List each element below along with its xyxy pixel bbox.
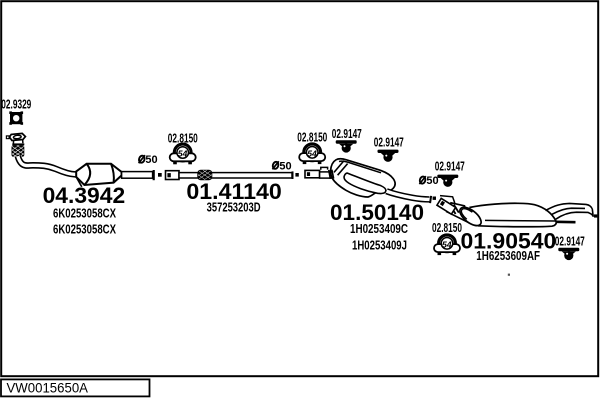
svg-text:6K0253058CX: 6K0253058CX (53, 205, 116, 220)
svg-text:02.9147: 02.9147 (332, 126, 362, 141)
svg-text:54: 54 (307, 149, 317, 159)
svg-text:50: 50 (145, 154, 157, 166)
svg-text:357253203D: 357253203D (207, 199, 261, 214)
svg-text:54: 54 (178, 149, 188, 159)
svg-text:54: 54 (442, 240, 452, 250)
svg-text:02.9329: 02.9329 (1, 97, 31, 112)
svg-text:1H0253409C: 1H0253409C (350, 221, 408, 236)
svg-text:02.9147: 02.9147 (435, 159, 465, 174)
svg-text:50: 50 (279, 160, 291, 172)
svg-text:02.8150: 02.8150 (432, 220, 462, 235)
svg-text:1H6253609AF: 1H6253609AF (476, 248, 540, 263)
svg-text:1H0253409J: 1H0253409J (352, 237, 407, 252)
svg-text:02.9147: 02.9147 (555, 234, 585, 249)
svg-text:6K0253058CX: 6K0253058CX (53, 221, 116, 236)
svg-text:02.9147: 02.9147 (374, 135, 404, 150)
svg-text:04.3942: 04.3942 (43, 183, 126, 208)
svg-text:VW0015650A: VW0015650A (7, 381, 89, 396)
svg-text:50: 50 (426, 175, 438, 187)
svg-text:02.8150: 02.8150 (297, 129, 327, 144)
